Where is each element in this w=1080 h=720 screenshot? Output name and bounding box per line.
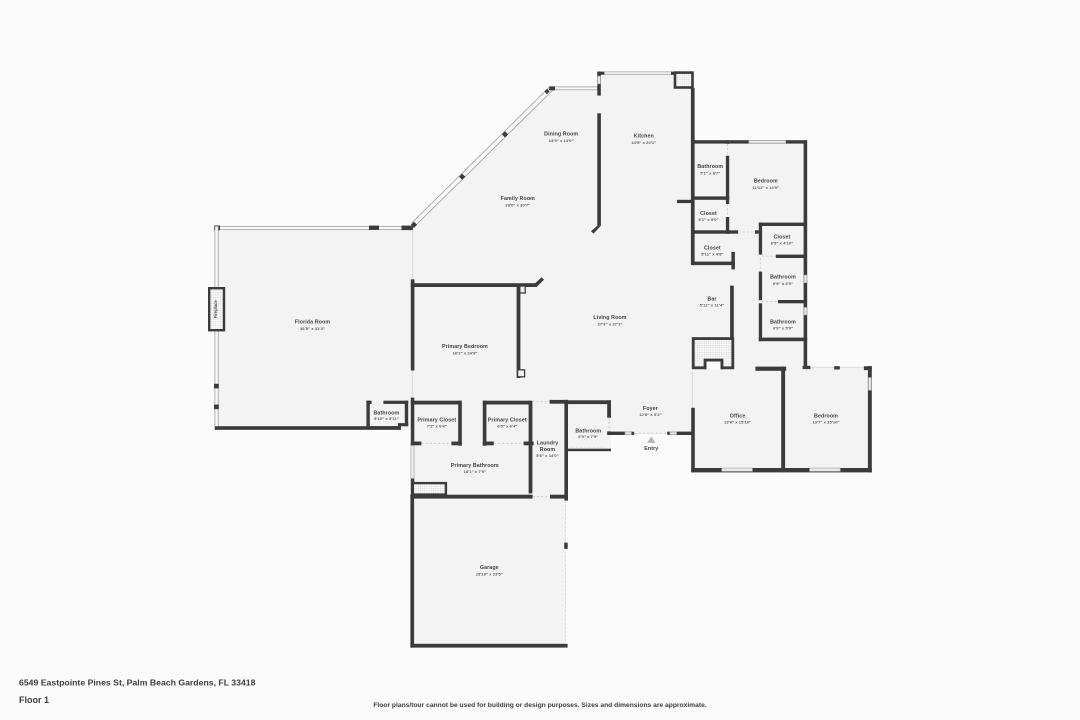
svg-text:Floor plans/tour cannot be use: Floor plans/tour cannot be used for buil… — [373, 702, 706, 709]
svg-text:Bathroom: Bathroom — [770, 319, 796, 325]
svg-text:Primary Bathroom: Primary Bathroom — [451, 463, 499, 469]
svg-text:14′5″ x 20′1″: 14′5″ x 20′1″ — [631, 140, 656, 145]
svg-text:Family Room: Family Room — [501, 196, 536, 202]
svg-text:11′11″ x 14′0″: 11′11″ x 14′0″ — [752, 185, 779, 190]
svg-text:Bar: Bar — [707, 296, 716, 302]
svg-text:Bathroom: Bathroom — [770, 275, 796, 281]
svg-text:5′11″ x 11′4″: 5′11″ x 11′4″ — [700, 303, 724, 308]
svg-text:36′5″ x 31′4″: 36′5″ x 31′4″ — [300, 326, 325, 331]
svg-text:6′5″ x 6′4″: 6′5″ x 6′4″ — [497, 424, 517, 429]
svg-text:12′8″ x 5′2″: 12′8″ x 5′2″ — [639, 412, 662, 417]
svg-text:Office: Office — [730, 413, 746, 419]
svg-text:Bedroom: Bedroom — [754, 179, 778, 185]
svg-text:6549 Eastpointe Pines St, Palm: 6549 Eastpointe Pines St, Palm Beach Gar… — [19, 678, 256, 688]
svg-text:Entry: Entry — [644, 446, 658, 452]
svg-text:Bathroom: Bathroom — [697, 164, 723, 170]
svg-text:Primary Bedroom: Primary Bedroom — [442, 344, 488, 350]
svg-text:13′6″ x 15′10″: 13′6″ x 15′10″ — [724, 419, 751, 424]
svg-text:5′6″ x 14′0″: 5′6″ x 14′0″ — [536, 453, 559, 458]
svg-text:6′5″ x 7′5″: 6′5″ x 7′5″ — [578, 434, 598, 439]
svg-text:Laundry: Laundry — [537, 441, 559, 447]
svg-text:29′0″ x 30′7″: 29′0″ x 30′7″ — [505, 202, 530, 207]
svg-text:5′1″ x 5′0″: 5′1″ x 5′0″ — [698, 217, 718, 222]
svg-text:Dining Room: Dining Room — [544, 131, 578, 137]
svg-text:23′10″ x 23′5″: 23′10″ x 23′5″ — [476, 571, 503, 576]
svg-text:7′2″ x 6′4″: 7′2″ x 6′4″ — [427, 424, 447, 429]
svg-text:Floor 1: Floor 1 — [19, 695, 49, 705]
svg-text:27′3″ x 27′1″: 27′3″ x 27′1″ — [598, 321, 623, 326]
svg-text:5′1″ x 8′7″: 5′1″ x 8′7″ — [700, 170, 720, 175]
svg-text:13′7″ x 15′10″: 13′7″ x 15′10″ — [812, 419, 839, 424]
svg-text:Closet: Closet — [704, 245, 721, 251]
svg-text:Living Room: Living Room — [593, 315, 626, 321]
svg-text:Fireplace: Fireplace — [213, 299, 218, 318]
svg-text:18′1″ x 7′9″: 18′1″ x 7′9″ — [464, 469, 487, 474]
svg-text:Room: Room — [540, 447, 556, 453]
svg-text:Bedroom: Bedroom — [814, 413, 838, 419]
svg-text:Garage: Garage — [480, 565, 499, 571]
svg-text:5′11″ x 4′8″: 5′11″ x 4′8″ — [701, 251, 723, 256]
svg-text:Kitchen: Kitchen — [634, 133, 654, 139]
svg-text:5′10″ x 3′11″: 5′10″ x 3′11″ — [374, 416, 399, 421]
svg-text:6′9″ x 5′9″: 6′9″ x 5′9″ — [773, 325, 793, 330]
svg-text:Florida Room: Florida Room — [295, 320, 331, 326]
svg-text:Closet: Closet — [774, 235, 791, 241]
svg-text:6′9″ x 6′9″: 6′9″ x 6′9″ — [773, 281, 793, 286]
svg-text:6′9″ x 4′10″: 6′9″ x 4′10″ — [771, 241, 794, 246]
svg-text:16′2″ x 24′9″: 16′2″ x 24′9″ — [453, 350, 478, 355]
svg-text:Closet: Closet — [700, 211, 717, 217]
svg-text:14′9″ x 14′0″: 14′9″ x 14′0″ — [549, 138, 574, 143]
